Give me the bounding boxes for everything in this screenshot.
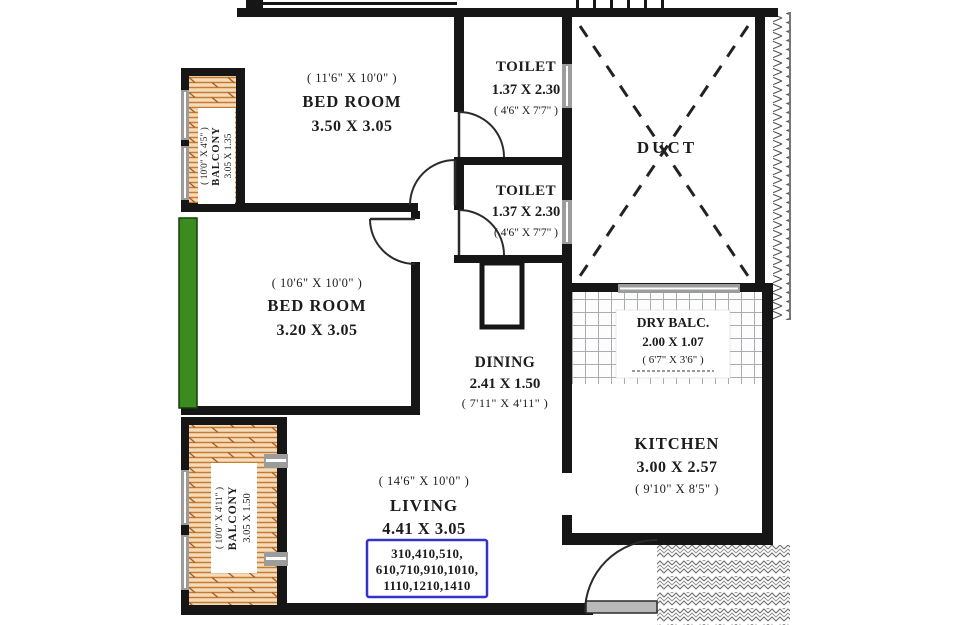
balcony-bottom-metric-label: 3.05 X 1.50	[242, 493, 253, 543]
dining-metric-label: 2.41 X 1.50	[470, 376, 541, 392]
bedroom1-name-label: BED ROOM	[302, 92, 401, 111]
flat-number-stamp: 310,410,510, 610,710,910,1010, 1110,1210…	[367, 540, 487, 597]
toilet1-feet-label: ( 4'6" X 7'7" )	[494, 105, 558, 117]
flat-numbers-line1: 310,410,510,	[391, 546, 463, 561]
side-hatch-edge	[789, 12, 791, 320]
kitchen-name-label: KITCHEN	[635, 434, 720, 453]
flat-numbers-line2: 610,710,910,1010,	[376, 562, 479, 577]
wall-segment	[454, 157, 570, 165]
wall-segment	[181, 203, 418, 212]
balcony-top-feet-label: ( 10'0" X 4'5" )	[199, 127, 210, 185]
wall-segment	[277, 417, 287, 615]
floor-plan-drawing: ( 11'6" X 10'0" ) BED ROOM 3.50 X 3.05 T…	[0, 0, 957, 625]
bedroom1-feet-label: ( 11'6" X 10'0" )	[307, 71, 397, 85]
toilet1-metric-label: 1.37 X 2.30	[492, 82, 560, 98]
shaft-box	[482, 263, 522, 327]
toilet2-metric-label: 1.37 X 2.30	[492, 204, 560, 220]
wall-segment	[411, 262, 420, 415]
lobby-herringbone-floor	[657, 545, 790, 625]
wall-segment	[181, 417, 281, 425]
toilet1-name-label: TOILET	[496, 59, 556, 75]
wall-segment	[237, 8, 778, 17]
kitchen-metric-label: 3.00 X 2.57	[636, 459, 717, 476]
dining-feet-label: ( 7'11" X 4'11" )	[462, 396, 548, 410]
bedroom1-door-arc	[410, 160, 455, 205]
wall-segment	[181, 406, 420, 415]
dining-name-label: DINING	[475, 354, 536, 371]
wall-segment	[236, 68, 245, 212]
wall-segment	[755, 8, 765, 291]
window-glass-line	[184, 92, 186, 138]
wall-segment	[181, 605, 283, 615]
wall-segment	[246, 2, 457, 5]
green-window-strip	[179, 218, 197, 408]
balcony-top-metric-label: 3.05 X 1.35	[224, 133, 234, 178]
window-glass-line	[184, 537, 186, 588]
window-glass-line	[620, 288, 738, 290]
balcony-bottom-feet-label: ( 10'0" X 4'11" )	[214, 487, 225, 549]
toilet2-name-label: TOILET	[496, 183, 556, 199]
window-glass-line	[266, 459, 286, 462]
living-feet-label: ( 14'6" X 10'0" )	[379, 474, 470, 488]
bedroom2-door-arc	[370, 219, 415, 264]
window-glass-line	[184, 148, 186, 198]
toilet2-feet-label: ( 4'6" X 7'7" )	[494, 227, 558, 239]
dry-balcony-feet-label: ( 6'7" X 3'6" )	[642, 354, 704, 366]
floor-plan-page: ( 11'6" X 10'0" ) BED ROOM 3.50 X 3.05 T…	[0, 0, 957, 625]
side-hatch-strip	[773, 12, 791, 320]
wall-segment	[279, 603, 593, 615]
window-glass-line	[566, 202, 568, 242]
bedroom2-feet-label: ( 10'6" X 10'0" )	[272, 276, 363, 290]
duct-label: DUCT	[637, 138, 697, 157]
window-glass-line	[566, 66, 568, 106]
window-glass-line	[266, 557, 286, 560]
wall-segment	[181, 68, 243, 76]
living-name-label: LIVING	[390, 496, 458, 515]
toilet1-door-arc	[459, 112, 504, 157]
kitchen-feet-label: ( 9'10" X 8'5" )	[635, 482, 719, 496]
bedroom2-metric-label: 3.20 X 3.05	[276, 322, 357, 339]
wall-segment	[762, 285, 773, 545]
balcony-bottom-name-label: BALCONY	[227, 486, 239, 551]
wall-segment	[562, 533, 773, 545]
bedroom1-metric-label: 3.50 X 3.05	[311, 118, 392, 135]
entrance-door-leaf	[586, 601, 657, 613]
bedroom2-name-label: BED ROOM	[267, 296, 366, 315]
balcony-top-name-label: BALCONY	[211, 126, 222, 186]
wall-segment	[454, 8, 464, 112]
flat-numbers-line3: 1110,1210,1410	[383, 578, 470, 593]
window-glass-line	[184, 472, 186, 523]
dry-balcony-metric-label: 2.00 X 1.07	[642, 334, 704, 349]
wall-segment	[246, 0, 263, 8]
dry-balcony-name-label: DRY BALC.	[637, 315, 710, 330]
living-metric-label: 4.41 X 3.05	[382, 519, 465, 538]
